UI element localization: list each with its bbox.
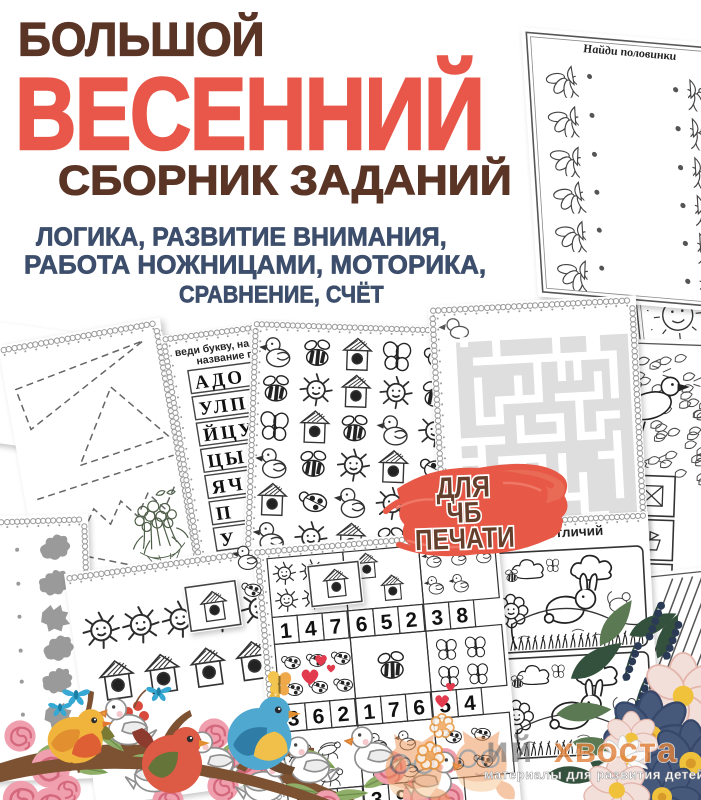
svg-text:П: П (214, 502, 235, 525)
svg-text:ЯЧ: ЯЧ (210, 474, 247, 499)
svg-text:материалы для развития детей: материалы для развития детей (484, 767, 701, 782)
svg-text:ЦЫ: ЦЫ (206, 447, 248, 473)
svg-text:ий: ий (486, 729, 534, 770)
svg-text:ПЕЧАТИ: ПЕЧАТИ (415, 521, 516, 557)
svg-text:хвоста: хвоста (554, 731, 678, 770)
